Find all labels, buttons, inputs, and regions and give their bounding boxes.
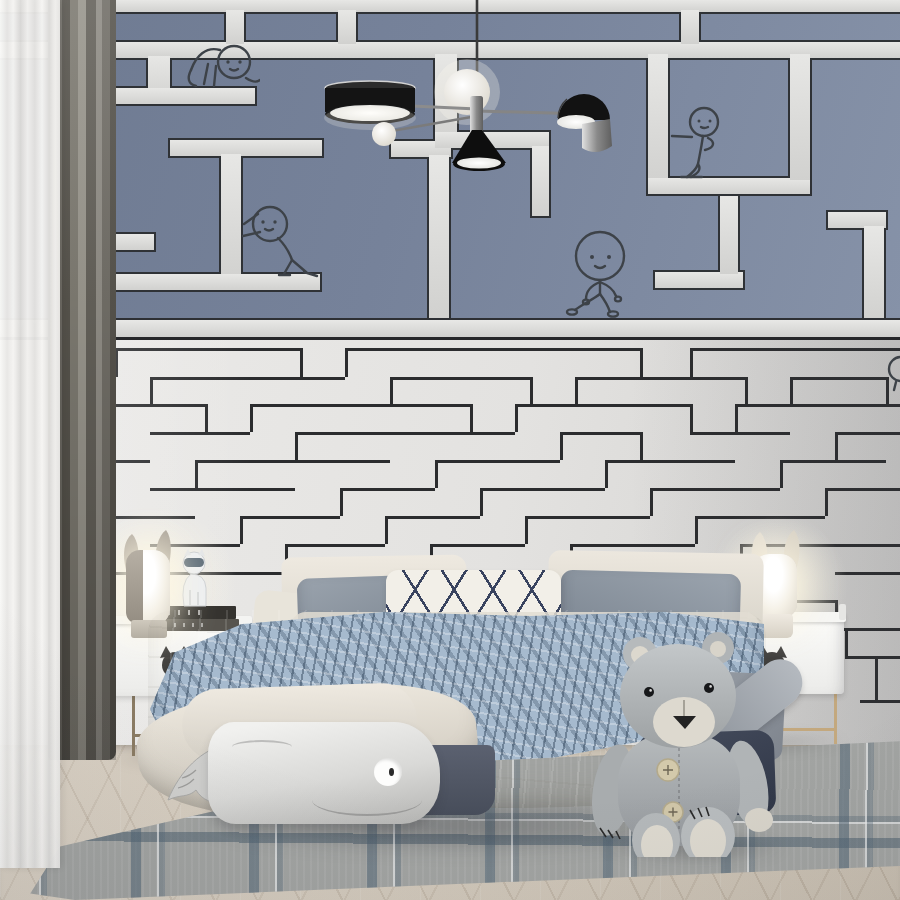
sheer-curtain	[0, 0, 60, 868]
lamp-base	[131, 620, 167, 638]
maze-line-v	[340, 488, 343, 516]
maze-line-v	[570, 544, 573, 572]
maze-line-h	[150, 432, 250, 435]
maze-line-v	[690, 404, 693, 432]
maze-line-h	[390, 377, 530, 380]
maze-line-v	[480, 488, 483, 516]
maze-line-h	[575, 377, 745, 380]
maze-line-v	[640, 432, 643, 460]
cat-cutout-handle	[152, 646, 198, 680]
maze-line-h	[835, 432, 900, 435]
ceiling-lamp	[280, 0, 620, 190]
maze-line-v	[205, 404, 208, 432]
doodle-pushing-kid	[238, 202, 323, 282]
bedroom-scene	[0, 0, 900, 900]
maze-line-h	[250, 404, 470, 407]
maze-line-v	[530, 377, 533, 404]
maze-line-h	[340, 488, 435, 491]
maze-line-v	[515, 404, 518, 432]
maze-line-v	[295, 432, 298, 460]
nightstand-left	[104, 520, 254, 760]
maze-divider-band	[0, 318, 900, 340]
nightstand-left-leg	[132, 690, 135, 756]
dog-figurine	[176, 548, 212, 608]
maze-line-v	[285, 544, 288, 572]
maze-line-v	[195, 460, 198, 488]
maze-line-v	[525, 516, 528, 544]
maze-line-h	[825, 488, 900, 491]
maze-line-h	[735, 404, 900, 407]
maze-line-v	[300, 348, 303, 377]
maze-line-v	[745, 377, 748, 404]
maze-line-h	[385, 516, 480, 519]
tray-lip-left	[698, 604, 705, 620]
maze-line-v	[345, 348, 348, 377]
maze-line-v	[640, 348, 643, 377]
maze-line-h	[345, 348, 640, 351]
maze-line-v	[650, 488, 653, 516]
doodle-pointing-kid	[668, 106, 730, 180]
maze-line-v	[690, 348, 693, 377]
teddy-bear	[578, 622, 778, 857]
maze-line-v	[735, 404, 738, 432]
maze-line-v	[560, 432, 563, 460]
lamp-front-panel	[126, 550, 143, 624]
maze-line-h	[240, 516, 340, 519]
maze-line-h	[430, 544, 525, 547]
maze-line-v	[385, 516, 388, 544]
maze-line-v	[575, 377, 578, 404]
maze-line-h	[295, 432, 515, 435]
maze-line-h	[780, 460, 886, 463]
maze-line-v	[790, 377, 793, 404]
maze-line-h	[690, 348, 900, 351]
maze-line-h	[195, 460, 390, 463]
maze-line-h	[285, 544, 385, 547]
maze-line-v	[430, 544, 433, 572]
maze-line-v	[250, 404, 253, 432]
maze-line-h	[480, 488, 605, 491]
maze-line-v	[780, 460, 783, 488]
nightstand-left-stretcher	[132, 734, 237, 737]
maze-line-v	[470, 404, 473, 432]
rabbit-lamp-right	[746, 528, 804, 636]
doodle-walking-kid	[560, 230, 640, 320]
nightstand-right-leg	[834, 692, 837, 744]
maze-line-h	[790, 377, 886, 380]
maze-line-h	[115, 404, 205, 407]
maze-line-h	[525, 516, 650, 519]
maze-line-v	[435, 460, 438, 488]
maze-line-h	[515, 404, 690, 407]
maze-line-h	[860, 700, 900, 703]
maze-line-h	[150, 488, 295, 491]
maze-line-h	[690, 432, 790, 435]
doodle-crawling-kid	[180, 40, 260, 90]
doodle-peeking-kid	[884, 352, 900, 392]
rabbit-lamp-left	[118, 528, 176, 640]
maze-line-h	[115, 348, 300, 351]
maze-line-h	[115, 460, 150, 463]
lamp-glass-body	[753, 554, 797, 618]
nightstand-left-leg	[234, 690, 237, 756]
maze-line-v	[390, 377, 393, 404]
maze-line-h	[570, 544, 695, 547]
maze-line-h	[435, 460, 560, 463]
maze-line-v	[605, 460, 608, 488]
maze-line-v	[150, 377, 153, 404]
maze-line-h	[150, 377, 345, 380]
maze-line-h	[605, 460, 735, 463]
tray-lip-right	[839, 604, 846, 620]
maze-line-v	[835, 432, 838, 460]
maze-line-h	[560, 432, 640, 435]
maze-line-h	[650, 488, 780, 491]
maze-line-v	[875, 656, 878, 700]
